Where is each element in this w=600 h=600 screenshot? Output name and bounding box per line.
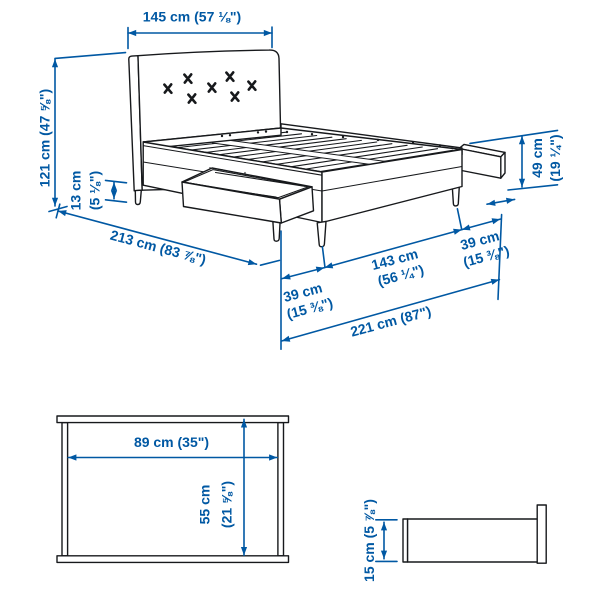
width-extension-ticks (128, 27, 272, 49)
side-view-height-label: 15 cm (5 ⅞") (361, 499, 377, 582)
clearance-extension-ticks (106, 180, 127, 202)
total-length-label: 221 cm (87") (349, 303, 433, 340)
corner-leg (317, 221, 326, 246)
top-view-depth-label-line2: (21 ⅝") (219, 481, 235, 528)
product-dimension-diagram: 145 cm (57 ⅛") 121 cm (47 ⅝") 13 cm (5 ⅛… (0, 0, 600, 600)
top-view-top-bar (57, 416, 289, 423)
top-view-left-rail (62, 423, 68, 556)
drawer-top-view: 89 cm (35") 55 cm (21 ⅝") (57, 416, 289, 562)
width-dimension-label: 145 cm (57 ⅛") (143, 9, 241, 25)
side-view-body (408, 519, 538, 562)
side-view-front-panel (537, 505, 546, 563)
headboard-leg (135, 190, 141, 204)
ledge-dimension-line (487, 199, 515, 204)
diagram-canvas: 145 cm (57 ⅛") 121 cm (47 ⅝") 13 cm (5 ⅛… (0, 0, 600, 600)
top-view-width-label: 89 cm (35") (134, 434, 209, 450)
top-view-depth-label-line1: 55 cm (197, 485, 213, 525)
foot-height-label-line1: 49 cm (529, 138, 545, 178)
foot-height-label-line2: (19 ¼") (547, 134, 563, 181)
top-view-bottom-bar (57, 556, 289, 563)
bed-isometric-drawing (129, 50, 505, 247)
height-dimension-label: 121 cm (47 ⅝") (37, 89, 53, 187)
drawer-side-view: 15 cm (5 ⅞") (361, 499, 546, 582)
chain-segment-left (282, 268, 325, 279)
clearance-label-line2: (5 ⅛") (87, 171, 103, 210)
top-view-right-rail (278, 423, 284, 556)
side-view-extension-ticks (376, 520, 397, 562)
clearance-label-line1: 13 cm (68, 171, 84, 211)
